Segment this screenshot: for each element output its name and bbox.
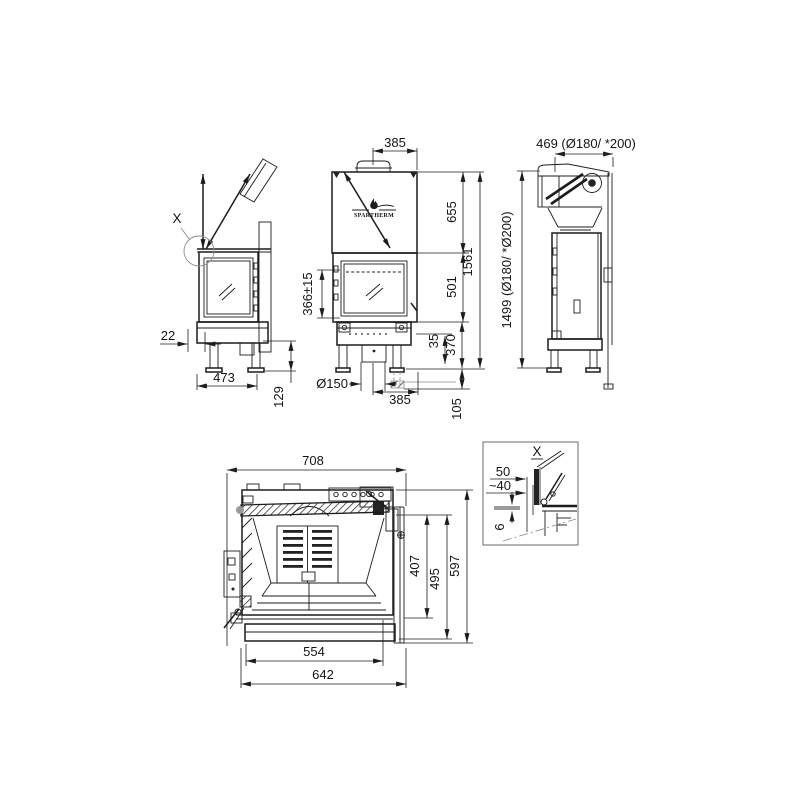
dim-385-top: 385 bbox=[373, 135, 417, 170]
dim-text-6: 6 bbox=[492, 523, 507, 530]
dim-473: 473 bbox=[197, 370, 257, 390]
dim-22: 22 bbox=[160, 328, 221, 352]
rear-view: 469 (Ø180/ *200) 1499 (Ø180/ *Ø200) bbox=[499, 136, 636, 389]
dim-text-655: 655 bbox=[444, 201, 459, 223]
dim-text-35: 35 bbox=[426, 334, 441, 348]
dim-text-473: 473 bbox=[213, 370, 235, 385]
dim-text-554: 554 bbox=[303, 644, 325, 659]
adjustable-foot bbox=[391, 381, 404, 388]
dim-text-495: 495 bbox=[427, 568, 442, 590]
dim-text-407: 407 bbox=[407, 555, 422, 577]
hinge-pin bbox=[236, 506, 244, 514]
right-side-panel bbox=[386, 507, 404, 643]
dim-text-22: 22 bbox=[161, 328, 175, 343]
dim-708: 708 bbox=[227, 453, 406, 646]
front-door bbox=[333, 253, 417, 322]
side-detail-x-label: X bbox=[172, 211, 181, 226]
side-door bbox=[199, 252, 258, 322]
detail-dims: 50 ~40 6 bbox=[486, 464, 526, 531]
dim-text-1561: 1561 bbox=[460, 248, 475, 277]
dim-text-105: 105 bbox=[449, 398, 464, 420]
dim-text-40: ~40 bbox=[489, 478, 511, 493]
dim-text-1499: 1499 (Ø180/ *Ø200) bbox=[499, 211, 514, 328]
dim-469: 469 (Ø180/ *200) bbox=[536, 136, 636, 172]
detail-x-label: X bbox=[532, 444, 541, 459]
flame-icon bbox=[370, 198, 378, 209]
dim-text-385-top: 385 bbox=[384, 135, 406, 150]
brand-logo: SPARTHERM bbox=[352, 198, 396, 219]
dim-text-129: 129 bbox=[271, 386, 286, 408]
dim-text-366: 366±15 bbox=[300, 272, 315, 315]
dim-text-o150: Ø150 bbox=[316, 376, 348, 391]
left-wall bbox=[242, 518, 252, 588]
dim-flue-150: Ø150 bbox=[316, 362, 397, 391]
rear-cap bbox=[538, 164, 609, 176]
dim-text-642: 642 bbox=[312, 667, 334, 682]
door-handle bbox=[411, 303, 417, 311]
dim-text-385-bottom: 385 bbox=[389, 392, 411, 407]
rear-base-legs bbox=[547, 339, 602, 372]
detail-x-view: X 50 ~40 bbox=[483, 442, 578, 545]
side-base-legs bbox=[197, 322, 268, 372]
grate bbox=[277, 526, 338, 583]
side-view: X 22 473 129 bbox=[160, 159, 296, 408]
front-view: SPARTHERM bbox=[300, 135, 485, 420]
rear-column bbox=[552, 233, 601, 339]
latch-box bbox=[224, 551, 240, 597]
dim-1499: 1499 (Ø180/ *Ø200) bbox=[499, 171, 546, 368]
brand-wordmark: SPARTHERM bbox=[354, 213, 394, 219]
side-rear-panel bbox=[259, 222, 271, 352]
dim-text-597: 597 bbox=[447, 555, 462, 577]
flue-collar bbox=[355, 161, 392, 172]
dim-129: 129 bbox=[263, 341, 296, 408]
dim-text-469: 469 (Ø180/ *200) bbox=[536, 136, 636, 151]
dim-text-50: 50 bbox=[496, 464, 510, 479]
fireplace-dimension-drawing: X 22 473 129 bbox=[0, 0, 800, 800]
dim-text-708: 708 bbox=[302, 453, 324, 468]
plan-view: 708 407 495 597 554 642 bbox=[224, 453, 473, 688]
dim-554: 554 bbox=[246, 620, 383, 666]
front-frame bbox=[231, 613, 395, 641]
dim-text-501: 501 bbox=[444, 276, 459, 298]
rear-hood bbox=[548, 207, 602, 233]
glass-band bbox=[241, 501, 389, 516]
technical-drawing-page: X 22 473 129 bbox=[0, 0, 800, 800]
